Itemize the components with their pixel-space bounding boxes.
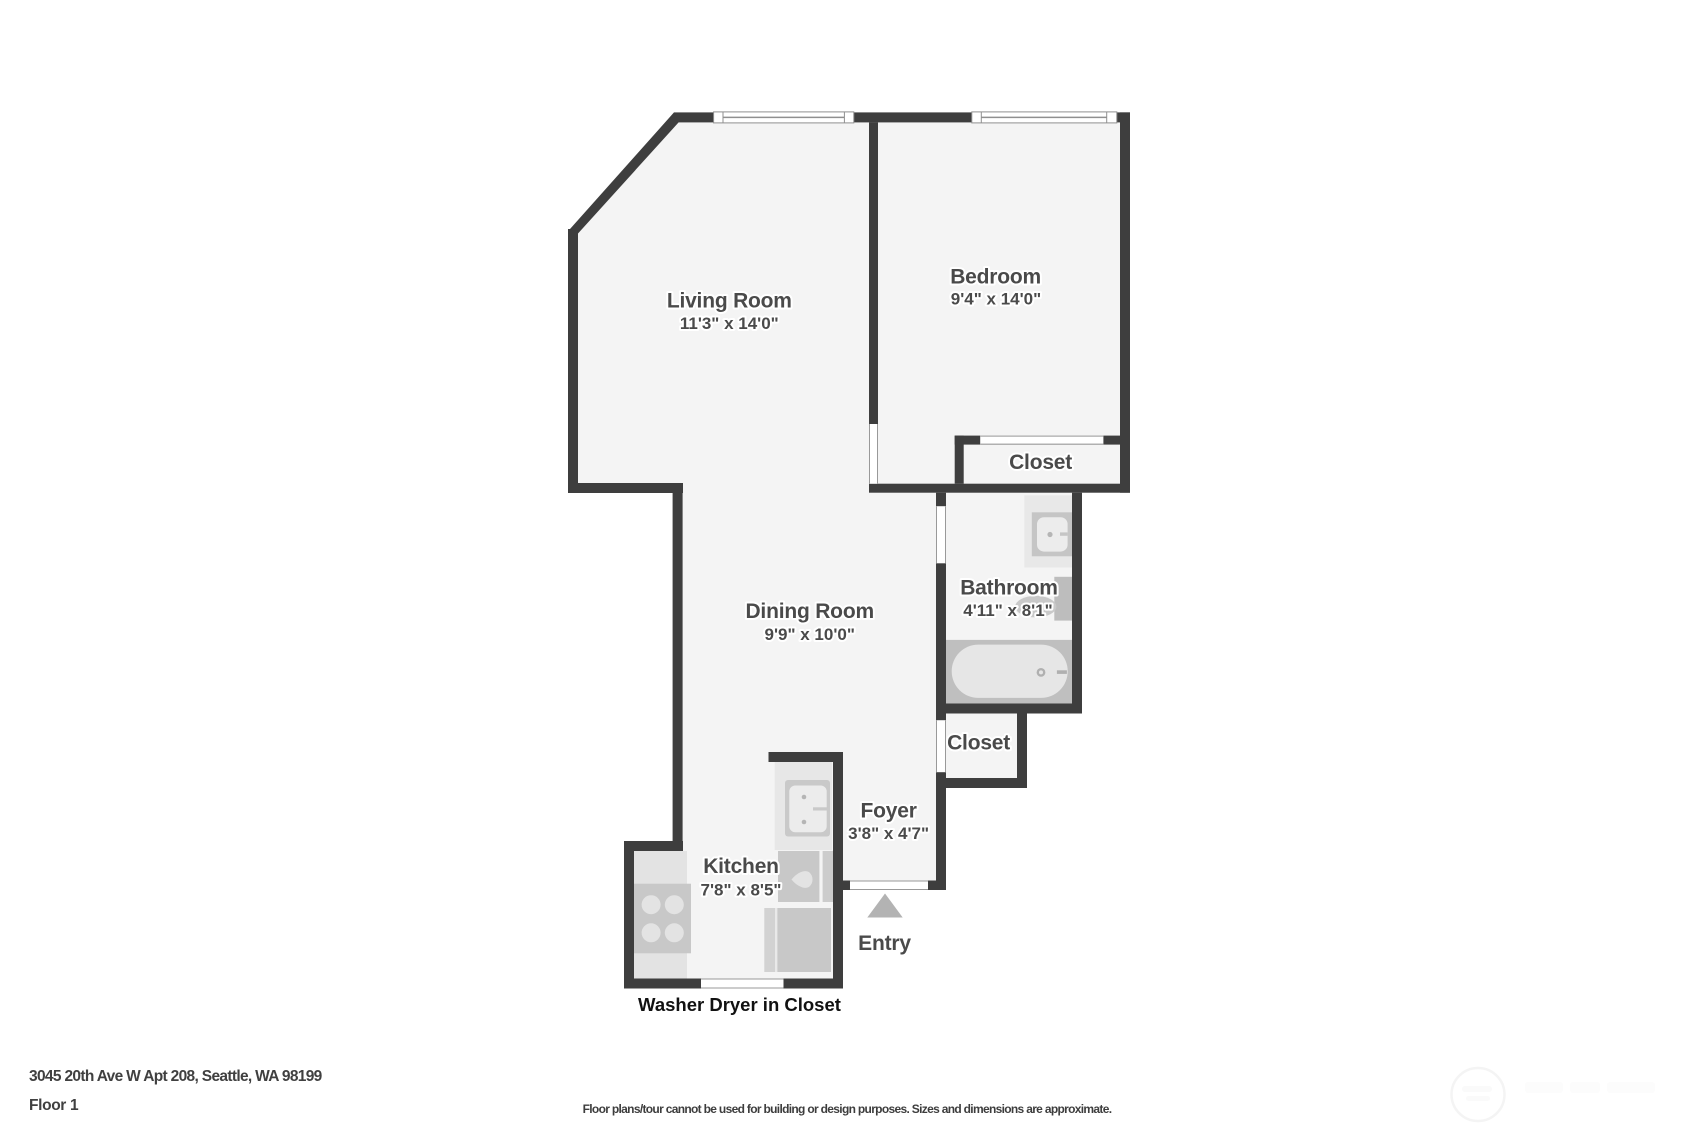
svg-text:Bedroom: Bedroom (950, 266, 1041, 289)
svg-text:9'9" x 10'0": 9'9" x 10'0" (765, 625, 855, 644)
svg-text:3045 20th Ave W Apt 208, Seatt: 3045 20th Ave W Apt 208, Seattle, WA 981… (29, 1068, 323, 1085)
svg-text:Closet: Closet (947, 732, 1010, 755)
svg-text:4'11" x 8'1": 4'11" x 8'1" (963, 601, 1052, 620)
svg-text:Dining Room: Dining Room (745, 600, 873, 623)
svg-text:7'8" x 8'5": 7'8" x 8'5" (701, 881, 782, 900)
svg-text:3'8" x 4'7": 3'8" x 4'7" (848, 824, 929, 843)
svg-text:Bathroom: Bathroom (960, 577, 1058, 600)
svg-text:9'4" x 14'0": 9'4" x 14'0" (951, 290, 1041, 309)
svg-text:Floor plans/tour cannot be use: Floor plans/tour cannot be used for buil… (583, 1102, 1112, 1116)
svg-text:Foyer: Foyer (861, 800, 917, 823)
svg-text:Entry: Entry (858, 932, 911, 955)
svg-text:Closet: Closet (1009, 451, 1072, 474)
svg-text:Kitchen: Kitchen (703, 855, 779, 878)
svg-text:Washer Dryer in Closet: Washer Dryer in Closet (638, 994, 841, 1015)
svg-text:Living Room: Living Room (667, 290, 792, 313)
svg-text:Floor 1: Floor 1 (29, 1097, 79, 1114)
svg-text:11'3" x 14'0": 11'3" x 14'0" (680, 314, 779, 333)
